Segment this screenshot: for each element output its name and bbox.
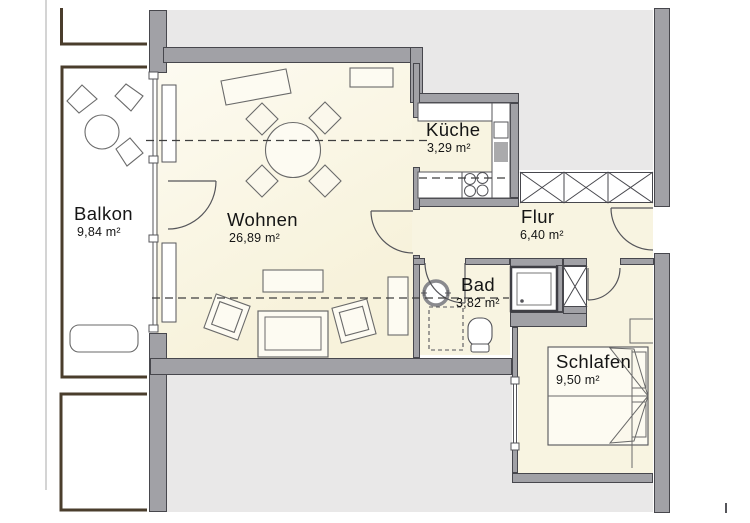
wall-bad-top-left (413, 258, 425, 265)
scale-tick (725, 503, 727, 513)
wall-bottom-band (150, 358, 512, 375)
wall-bad-top-right (465, 258, 510, 265)
room-label-flur: Flur 6,40 m² (521, 206, 564, 242)
kueche-opening-floor (412, 118, 420, 167)
wall-right-bottom (654, 253, 670, 513)
shaft-box (563, 266, 587, 307)
room-name: Bad (461, 274, 500, 296)
wall-schlafen-top (620, 258, 654, 265)
wall-schlafen-bottom (512, 473, 653, 483)
wall-schlafen-left-upper (512, 327, 518, 380)
wall-right-top (654, 8, 670, 207)
room-area: 6,40 m² (520, 228, 564, 242)
room-area: 3,82 m² (456, 296, 500, 310)
schlafen-floor (518, 327, 653, 473)
room-name: Schlafen (556, 351, 631, 373)
wall-wohnen-top (163, 47, 415, 63)
wall-shower-right (556, 265, 563, 312)
wall-shaft-cap-top (563, 258, 587, 266)
room-label-bad: Bad 3,82 m² (461, 274, 500, 310)
flur-wardrobe (520, 172, 653, 203)
balcony-chair-icon (67, 84, 143, 166)
room-area: 3,29 m² (427, 141, 480, 155)
room-name: Küche (426, 119, 480, 141)
wall-shower-bottom (510, 312, 587, 327)
room-label-wohnen: Wohnen 26,89 m² (227, 209, 298, 245)
balcony-bench-icon (70, 325, 138, 352)
adjacent-area-top (167, 10, 653, 47)
adjacent-area-top (423, 47, 653, 93)
wohnen-door-opening-floor (412, 210, 420, 255)
wall-wohnen-right-upper (413, 63, 420, 118)
wall-left-top (149, 10, 167, 73)
floor-plan: Balkon 9,84 m² Wohnen 26,89 m² Küche 3,2… (0, 0, 750, 523)
adjacent-area-bottom (512, 483, 653, 512)
room-area: 26,89 m² (229, 231, 298, 245)
balcony-table-icon (85, 115, 119, 149)
adjacent-area-bottom (167, 375, 512, 512)
page-edge-line (45, 0, 47, 490)
room-label-balkon: Balkon 9,84 m² (74, 203, 133, 239)
room-name: Flur (521, 206, 564, 228)
wall-wohnen-right-mid (413, 167, 420, 210)
room-name: Balkon (74, 203, 133, 225)
adjacent-area-top (519, 93, 653, 170)
room-area: 9,84 m² (77, 225, 133, 239)
room-area: 9,50 m² (556, 373, 631, 387)
wall-kueche-right (510, 103, 519, 198)
shower-icon (511, 267, 557, 311)
schlafen-floor (587, 258, 653, 327)
room-name: Wohnen (227, 209, 298, 231)
balcony-parapet-outline (61, 8, 147, 510)
room-label-kueche: Küche 3,29 m² (426, 119, 480, 155)
wall-wohnen-right-lower (413, 255, 420, 358)
room-label-schlafen: Schlafen 9,50 m² (556, 351, 631, 387)
wall-kueche-top (413, 93, 519, 103)
wall-kueche-bottom (413, 198, 519, 207)
wall-schlafen-left-lower (512, 445, 518, 473)
bad-door-opening-floor (425, 258, 465, 265)
